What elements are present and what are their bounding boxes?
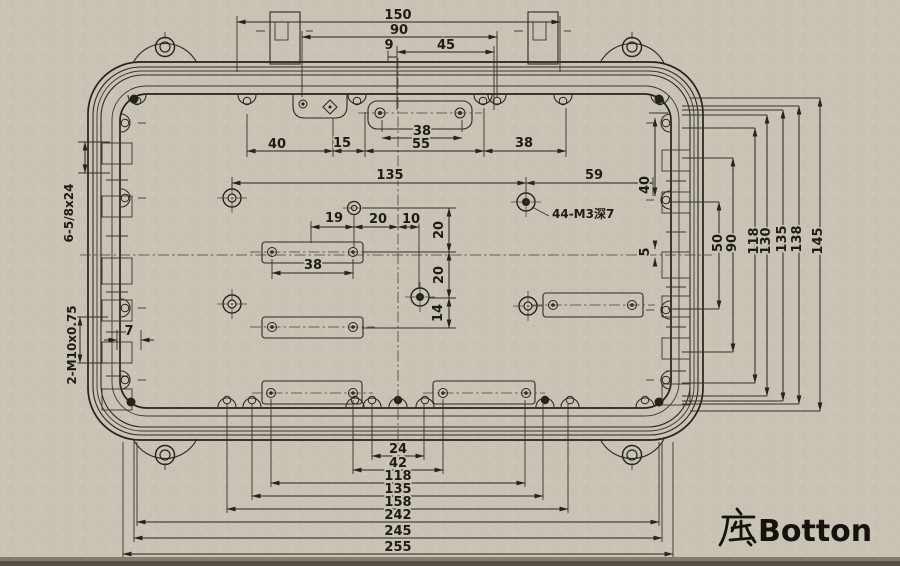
view-caption-latin: Botton xyxy=(758,514,872,549)
dim-label: 145 xyxy=(811,227,826,254)
tapped-hole-callout: 44-M3深7 xyxy=(552,206,614,221)
dim-label: 150 xyxy=(384,8,411,23)
dim-label: 135 xyxy=(376,168,403,183)
dim-label: 45 xyxy=(437,38,455,53)
dim-label: 90 xyxy=(390,23,408,38)
dim-label: 40 xyxy=(638,176,653,194)
dim-label: 38 xyxy=(515,136,533,151)
engineering-drawing-bottom-view: 150 90 9 45 38 40 15 55 38 135 59 44-M3深… xyxy=(0,0,900,566)
dim-label: 135 xyxy=(775,225,790,252)
dim-label: 130 xyxy=(759,227,774,254)
dim-label: 10 xyxy=(402,212,420,227)
dim-label: 7 xyxy=(124,324,133,339)
gland-thread-callout: 2-M10x0.75 xyxy=(65,305,79,384)
dim-label: 40 xyxy=(268,137,286,152)
paper-background xyxy=(0,0,900,566)
dim-label: 20 xyxy=(432,266,447,284)
dim-label: 38 xyxy=(304,258,322,273)
dim-label: 245 xyxy=(384,524,411,539)
scan-edge-shadow xyxy=(0,557,900,566)
dim-label: 20 xyxy=(369,212,387,227)
dim-label: 5 xyxy=(638,247,653,256)
dim-label: 50 xyxy=(711,234,726,252)
dim-label: 59 xyxy=(585,168,603,183)
dim-label: 24 xyxy=(389,442,407,457)
dim-label: 138 xyxy=(790,225,805,252)
dim-label: 242 xyxy=(384,508,411,523)
dim-label: 255 xyxy=(384,540,411,555)
dim-label: 9 xyxy=(384,38,393,53)
dim-label: 19 xyxy=(325,211,343,226)
dim-label: 90 xyxy=(725,234,740,252)
dim-label: 14 xyxy=(431,304,446,322)
dim-label: 55 xyxy=(412,137,430,152)
dim-label: 15 xyxy=(333,136,351,151)
side-thread-callout: 6-5/8x24 xyxy=(62,184,76,243)
dim-label: 20 xyxy=(432,221,447,239)
drawing-sheet: 150 90 9 45 38 40 15 55 38 135 59 44-M3深… xyxy=(0,0,900,566)
